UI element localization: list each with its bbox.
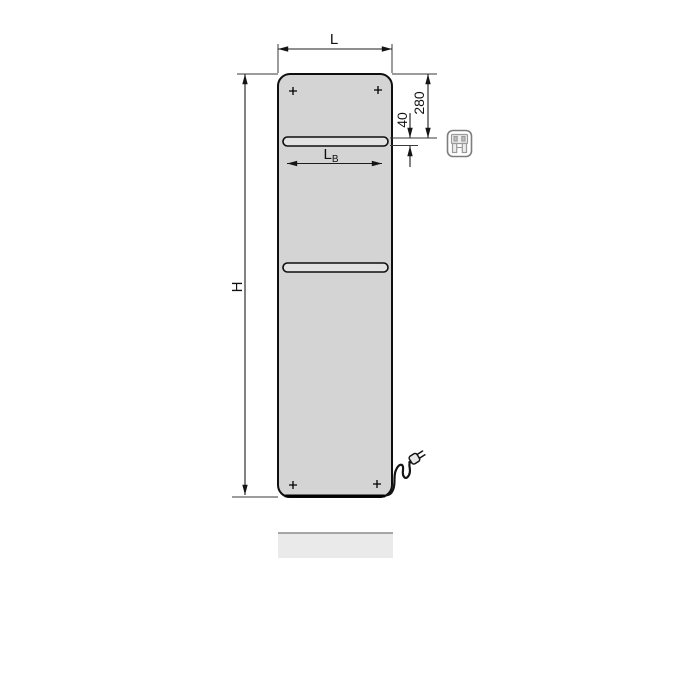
dimension-280: 280: [411, 74, 428, 138]
dimension-height-H: H: [229, 74, 278, 497]
label-40: 40: [394, 112, 410, 128]
towel-rail-middle: [283, 263, 388, 272]
dimension-40: 40: [394, 112, 410, 167]
radiator-dimension-drawing: L H 280 40 LB: [0, 0, 700, 700]
drawing-svg: L H 280 40 LB: [0, 0, 700, 700]
towel-rail-top: [283, 137, 388, 146]
dimension-width-L: L: [278, 31, 392, 73]
floor-reflection-bar: [278, 533, 393, 558]
label-280: 280: [411, 91, 427, 115]
label-H: H: [229, 282, 246, 293]
electric-plug-badge-icon: [448, 131, 472, 157]
label-L: L: [330, 31, 338, 48]
